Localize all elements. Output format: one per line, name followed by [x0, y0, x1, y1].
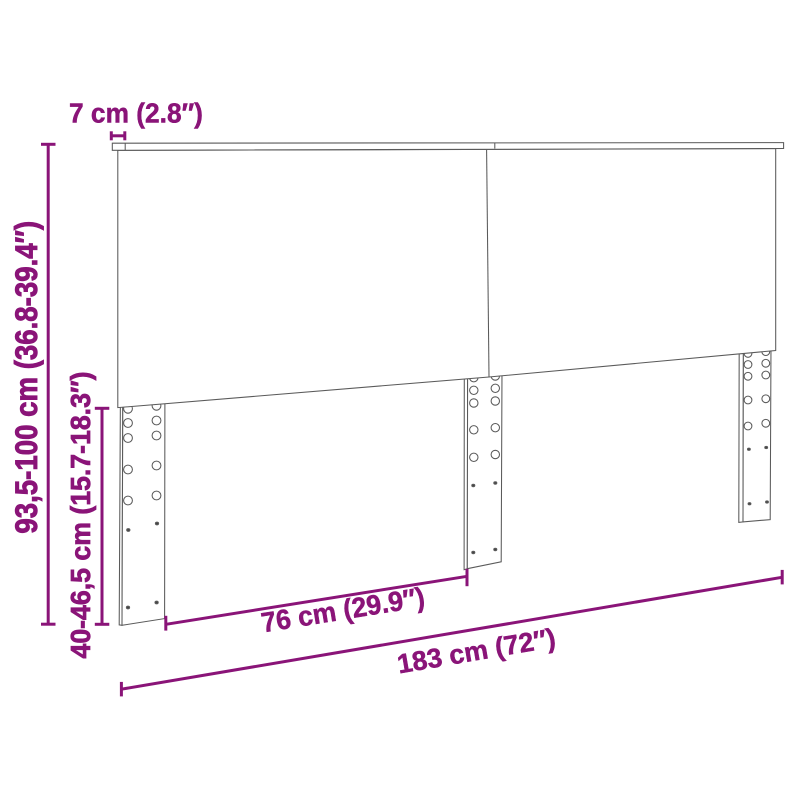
- svg-text:40-46,5 cm (15.7-18.3″): 40-46,5 cm (15.7-18.3″): [65, 371, 97, 658]
- svg-text:93,5-100 cm (36.8-39.4″): 93,5-100 cm (36.8-39.4″): [10, 221, 45, 534]
- svg-text:7 cm (2.8″): 7 cm (2.8″): [69, 97, 203, 129]
